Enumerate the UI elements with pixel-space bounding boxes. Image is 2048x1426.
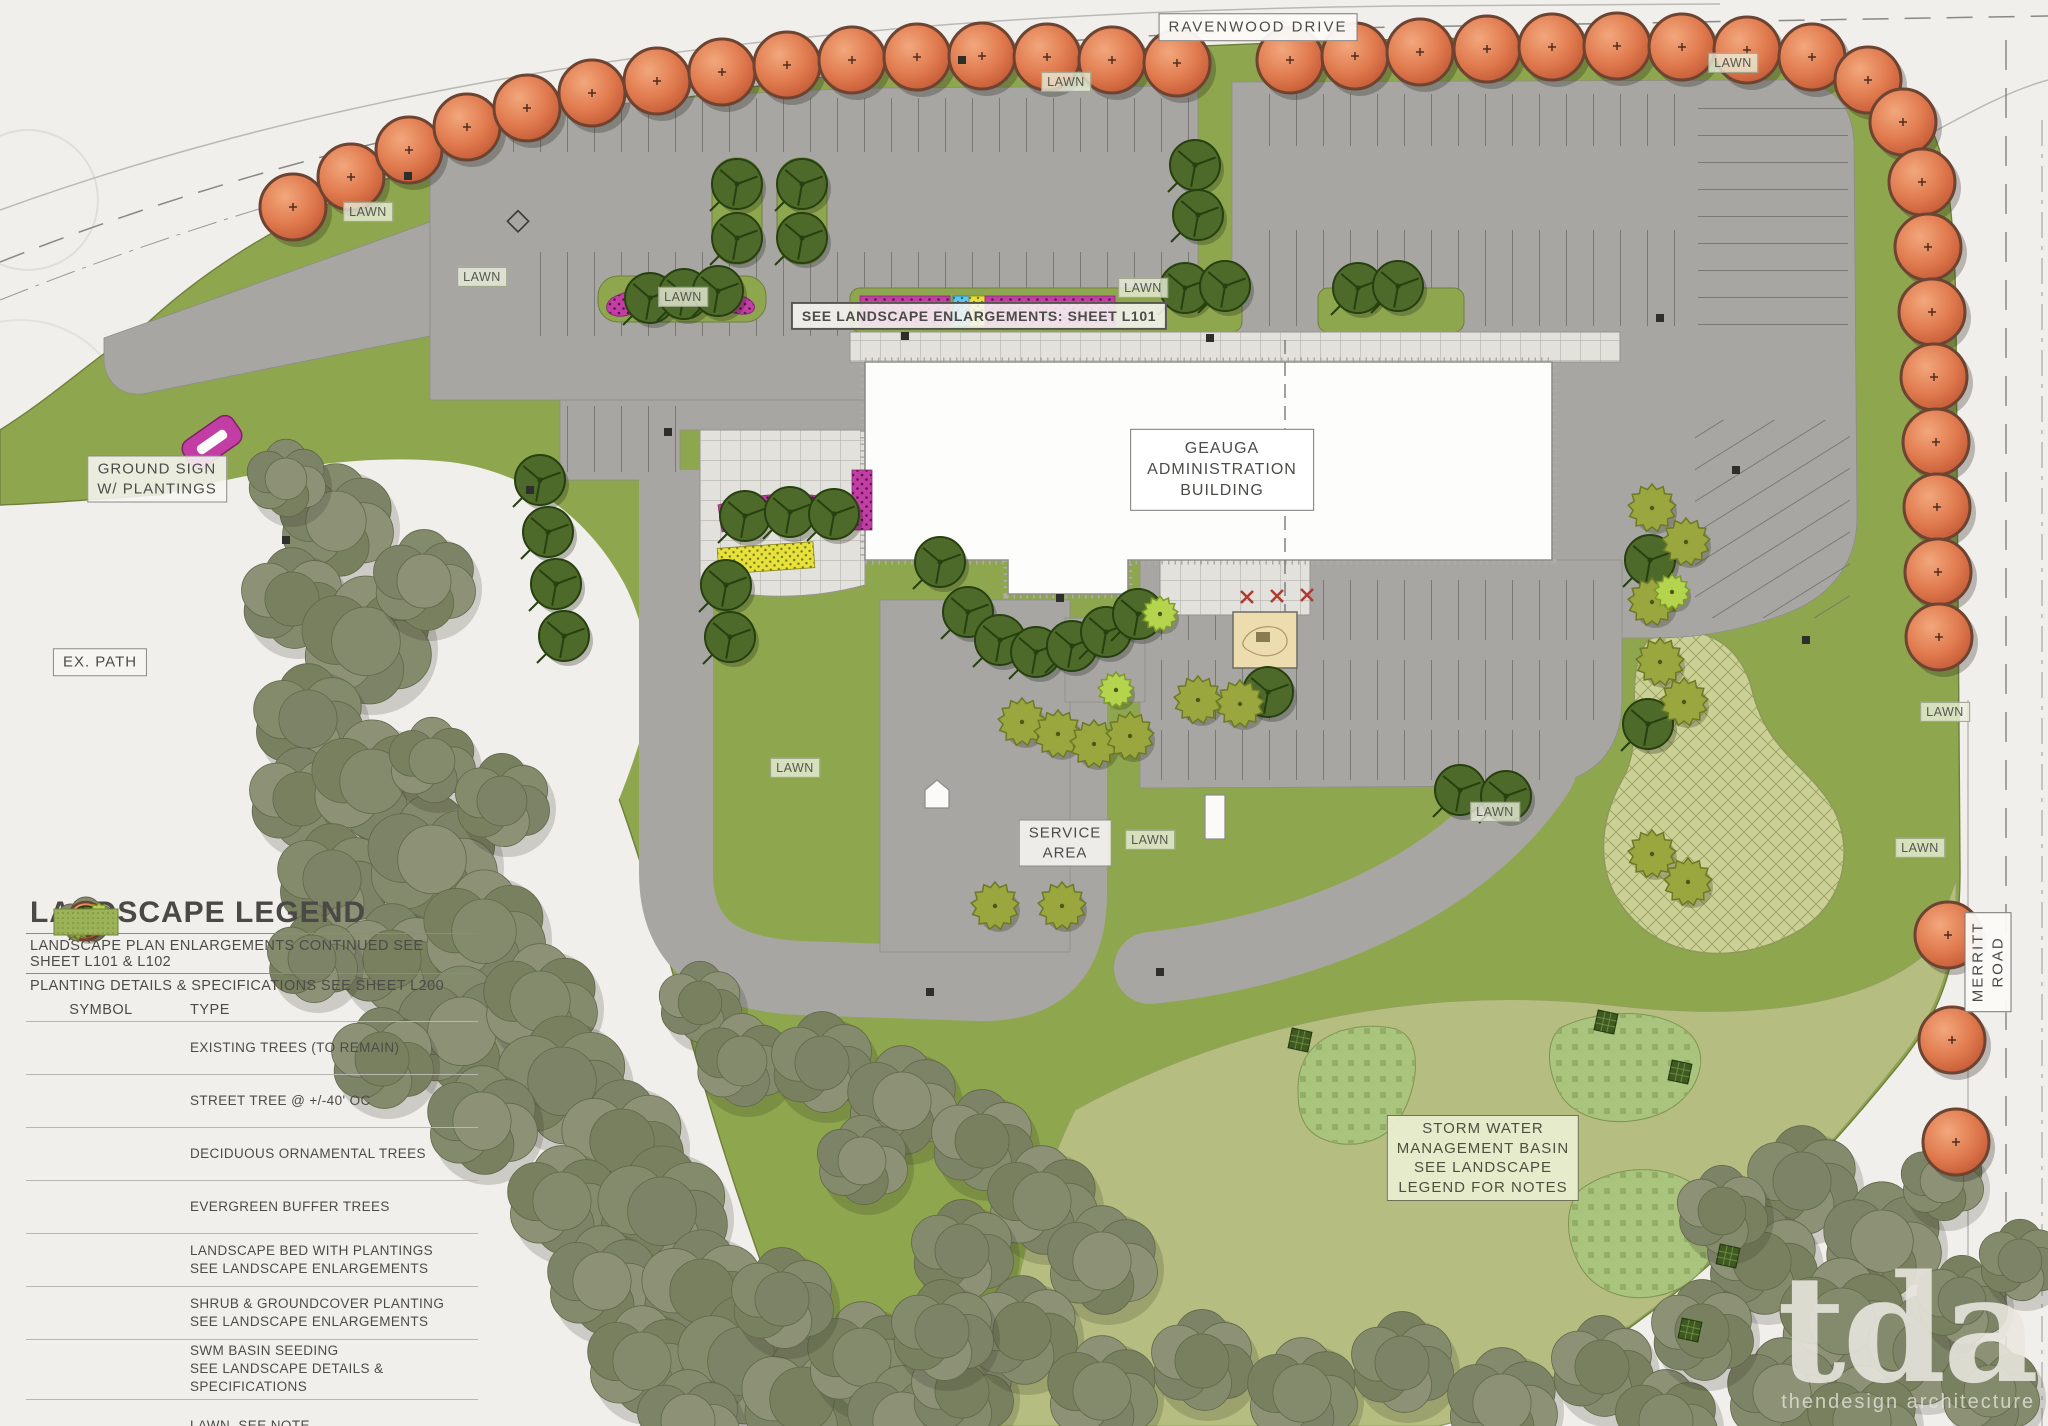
legend-item-lawn: LAWN, SEE NOTE [26,1399,478,1426]
legend-items: EXISTING TREES (TO REMAIN) STREET TREE @… [26,1021,478,1426]
lawn-label: LAWN [1708,53,1758,73]
existing-tree-icon [1375,1336,1429,1390]
plan-label: RAVENWOOD DRIVE [1159,13,1358,41]
site-light-icon [1802,636,1810,644]
existing-tree-icon [1938,1277,1986,1325]
legend-item-deciduous: DECIDUOUS ORNAMENTAL TREES [26,1127,478,1180]
north-walk [850,332,1620,362]
existing-tree-icon [755,1272,809,1326]
site-light-icon [282,536,290,544]
existing-tree-icon [678,981,722,1025]
existing-tree-icon [1013,1172,1071,1230]
existing-tree-icon [1473,1374,1531,1426]
plan-label: EX. PATH [53,648,147,676]
lawn-label: LAWN [770,758,820,778]
site-light-icon [404,172,412,180]
legend-item-evergreen: EVERGREEN BUFFER TREES [26,1180,478,1233]
existing-tree-icon [1273,1364,1331,1422]
legend-item-bed: LANDSCAPE BED WITH PLANTINGS SEE LANDSCA… [26,1233,478,1286]
existing-tree-icon [573,1252,631,1310]
legend-item-label: LANDSCAPE BED WITH PLANTINGS SEE LANDSCA… [176,1242,478,1278]
existing-tree-icon [1773,1152,1831,1210]
legend-item-shrub: SHRUB & GROUNDCOVER PLANTING SEE LANDSCA… [26,1286,478,1339]
legend-item-label: SWM BASIN SEEDING SEE LANDSCAPE DETAILS … [176,1342,478,1397]
shed [1205,795,1225,839]
legend-note: PLANTING DETAILS & SPECIFICATIONS SEE SH… [26,973,478,997]
legend-item-label: SHRUB & GROUNDCOVER PLANTING SEE LANDSCA… [176,1295,478,1331]
plan-label: SEE LANDSCAPE ENLARGEMENTS: SHEET L101 [791,302,1167,330]
site-light-icon [1206,334,1214,342]
site-light-icon [526,486,534,494]
existing-tree-icon [717,1036,767,1086]
lawn-label: LAWN [1920,702,1970,722]
existing-tree-icon [1073,1232,1131,1290]
existing-tree-icon [1753,1364,1811,1422]
lawn-label: LAWN [1125,830,1175,850]
lawn-label: LAWN [1895,838,1945,858]
lawn-legend-icon [26,896,146,948]
site-light-icon [901,332,909,340]
existing-tree-icon [915,1304,969,1358]
existing-tree-icon [1575,1340,1629,1394]
existing-tree-icon [1998,1239,2042,1283]
site-light-icon [664,428,672,436]
site-light-icon [1732,466,1740,474]
legend-item-street: STREET TREE @ +/-40' OC [26,1074,478,1127]
legend-header-type: TYPE [176,1002,478,1018]
lawn-label: LAWN [457,267,507,287]
swm-marker-icon [1668,1060,1692,1084]
legend-item-existing: EXISTING TREES (TO REMAIN) [26,1021,478,1074]
plan-label: STORM WATER MANAGEMENT BASIN SEE LANDSCA… [1387,1115,1579,1201]
site-light-icon [1056,594,1064,602]
legend-item-label: DECIDUOUS ORNAMENTAL TREES [176,1145,478,1163]
site-plan-sheet: RAVENWOOD DRIVEMERRITT ROADGROUND SIGN W… [0,0,2048,1426]
legend-item-label: EXISTING TREES (TO REMAIN) [176,1039,478,1057]
existing-tree-icon [935,1224,989,1278]
legend-header-symbol: SYMBOL [26,1002,176,1018]
existing-tree-icon [1698,1187,1746,1235]
site-light-icon [1156,968,1164,976]
existing-tree-icon [1809,1288,1876,1355]
existing-tree-icon [533,1172,591,1230]
lawn-label: LAWN [1041,72,1091,92]
legend-item-label: EVERGREEN BUFFER TREES [176,1198,478,1216]
site-light-icon [958,56,966,64]
existing-tree-icon [279,690,337,748]
existing-tree-icon [838,1137,886,1185]
site-light-icon [926,988,934,996]
plan-label: GEAUGA ADMINISTRATION BUILDING [1130,429,1314,511]
lawn-label: LAWN [343,202,393,222]
existing-tree-icon [795,1036,849,1090]
plan-label: SERVICE AREA [1019,820,1112,867]
legend-item-label: STREET TREE @ +/-40' OC [176,1092,478,1110]
lawn-label: LAWN [1118,278,1168,298]
swm-marker-icon [1678,1318,1702,1342]
existing-tree-icon [1175,1334,1229,1388]
existing-tree-icon [409,738,455,784]
plan-label: MERRITT ROAD [1965,912,2012,1012]
existing-tree-icon [1073,1362,1131,1420]
existing-tree-icon [477,776,527,826]
swm-marker-icon [1716,1244,1740,1268]
lawn-label: LAWN [658,287,708,307]
legend-item-label: LAWN, SEE NOTE [176,1417,478,1426]
legend-item-swm: SWM BASIN SEEDING SEE LANDSCAPE DETAILS … [26,1339,478,1399]
existing-tree-icon [955,1114,1009,1168]
existing-tree-icon [397,554,451,608]
legend-headers: SYMBOL TYPE [26,997,478,1021]
landscape-legend: LANDSCAPE LEGEND LANDSCAPE PLAN ENLARGEM… [26,896,478,1426]
lawn-label: LAWN [1470,802,1520,822]
existing-tree-icon [613,1332,671,1390]
playground [1233,612,1297,668]
existing-tree-icon [265,458,307,500]
existing-tree-icon [993,1302,1051,1360]
existing-tree-icon [873,1072,931,1130]
site-light-icon [1656,314,1664,322]
plan-label: GROUND SIGN W/ PLANTINGS [87,456,227,503]
existing-tree-icon [1964,1365,2016,1417]
swm-marker-icon [1594,1010,1618,1034]
existing-tree-icon [398,825,467,894]
swm-marker-icon [1288,1028,1312,1052]
